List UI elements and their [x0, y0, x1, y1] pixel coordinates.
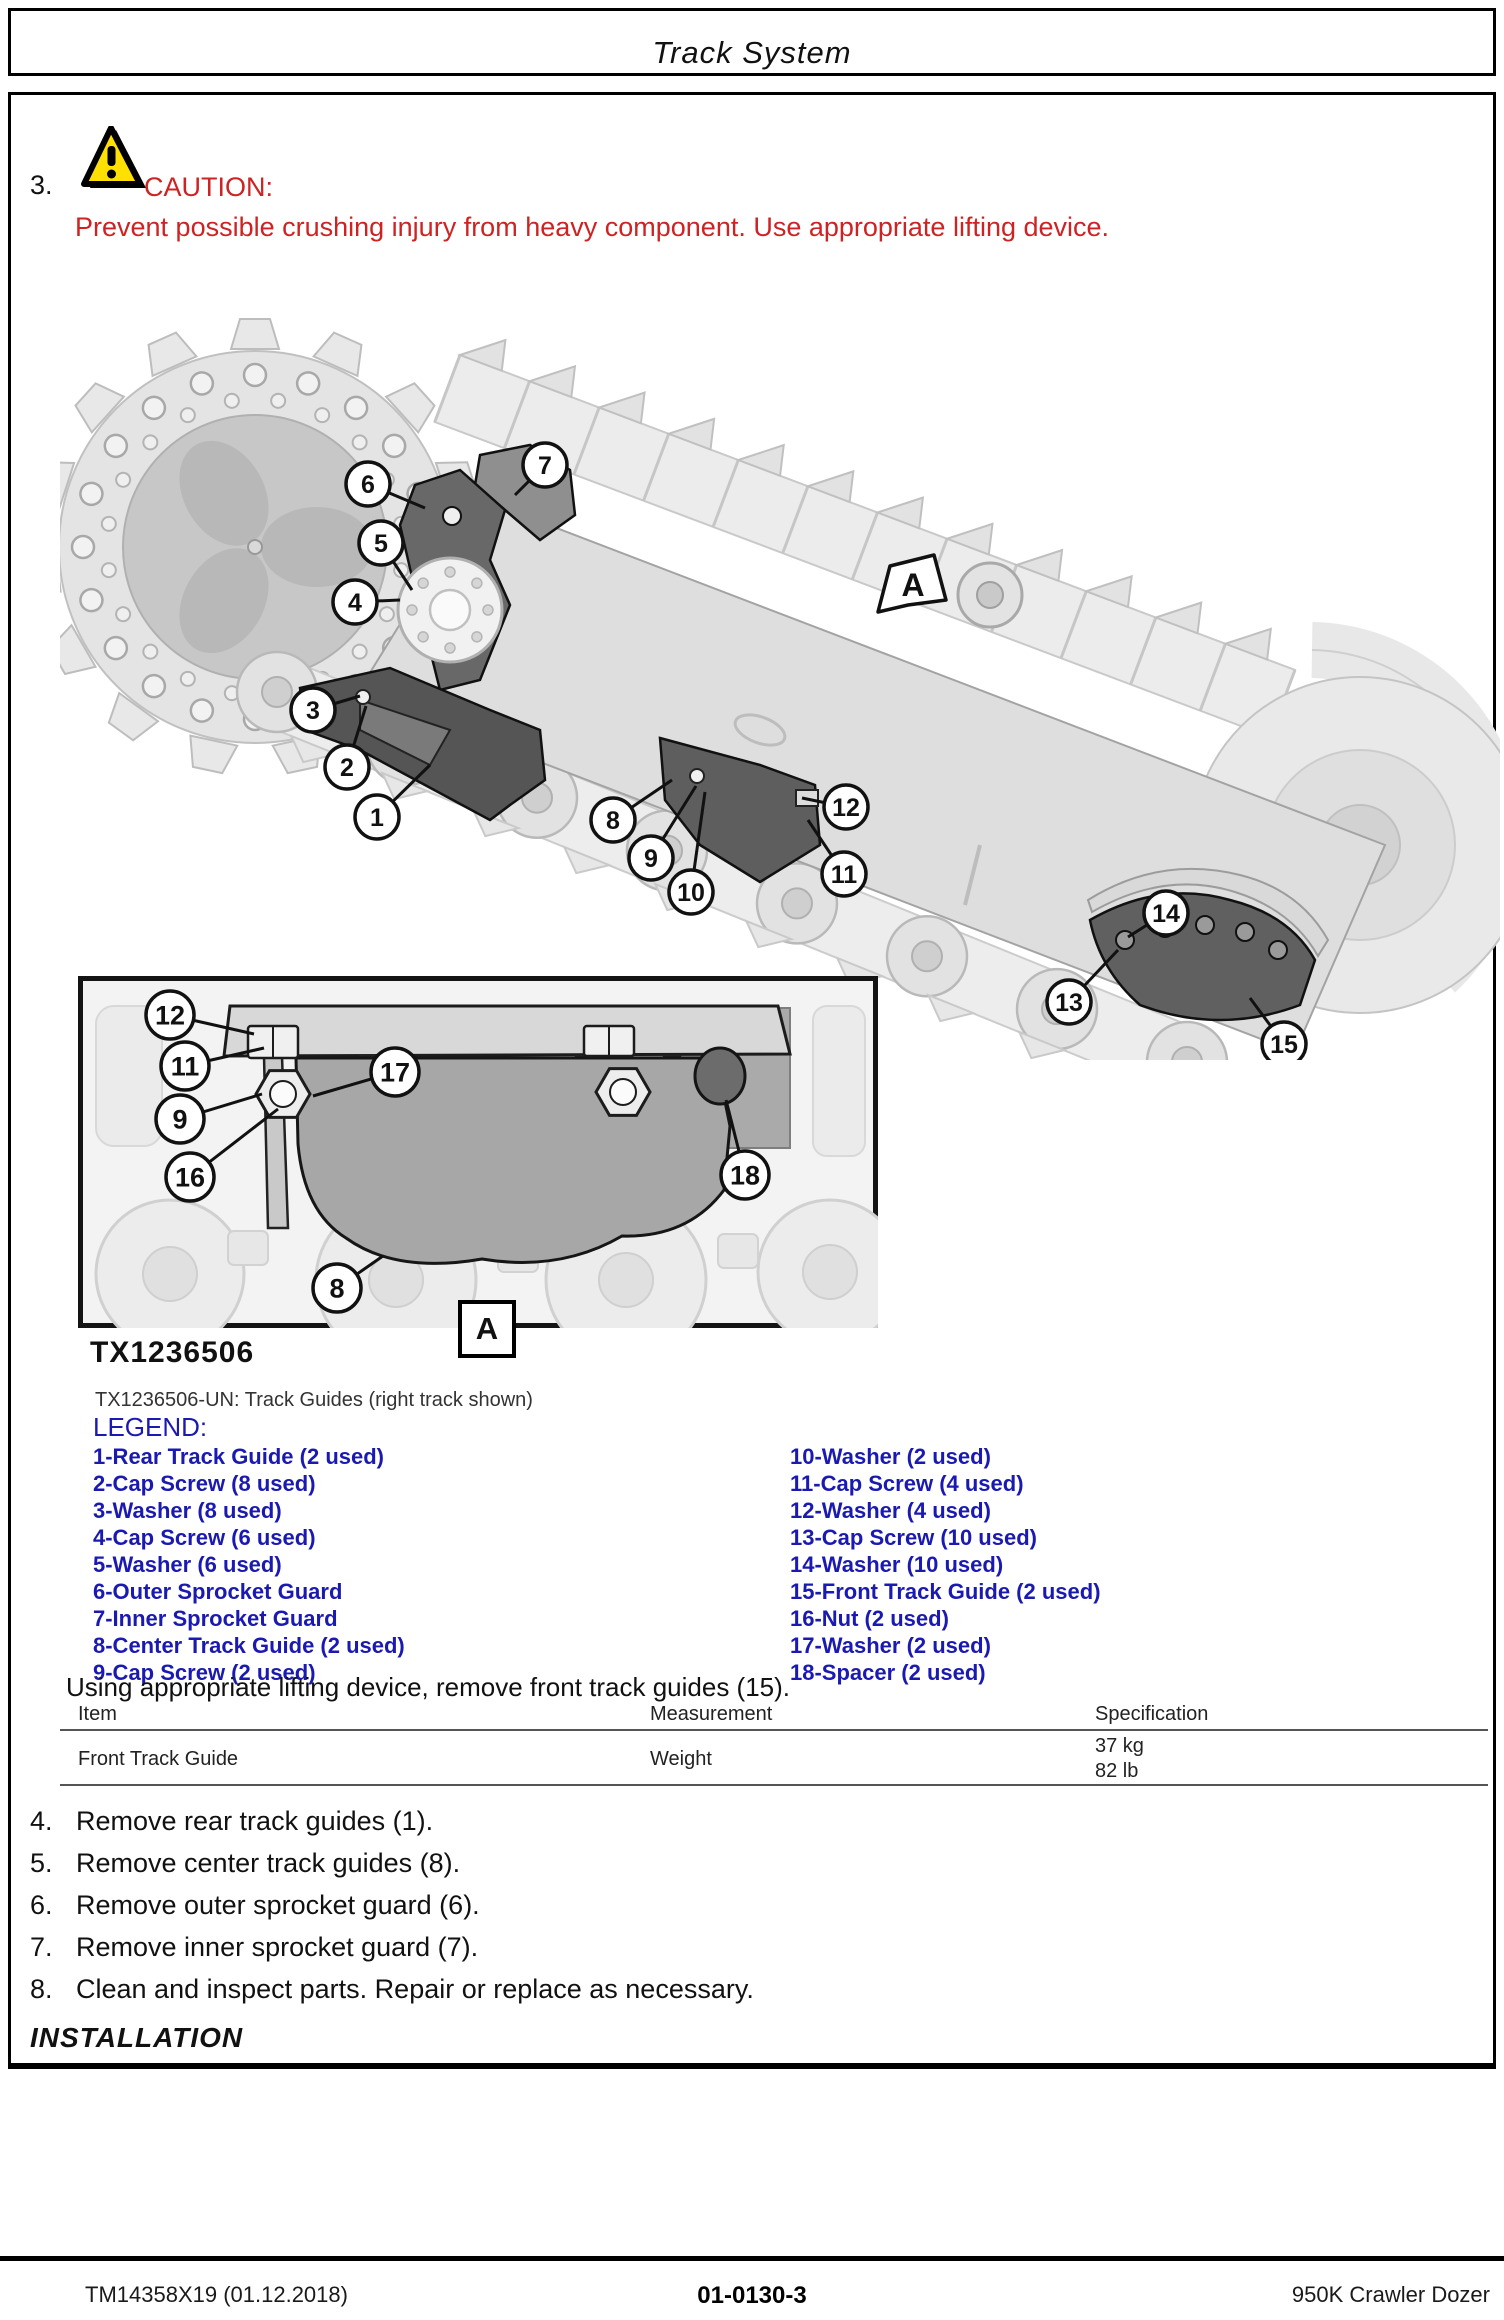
step-number: 4. [30, 1806, 76, 1836]
legend-item: 10-Washer (2 used) [790, 1443, 1430, 1470]
svg-text:2: 2 [340, 754, 354, 782]
step-text: Remove center track guides (8). [76, 1848, 460, 1878]
final-drive-hub [398, 558, 502, 662]
legend-item: 2-Cap Screw (8 used) [93, 1470, 733, 1497]
legend-item: 13-Cap Screw (10 used) [790, 1524, 1430, 1551]
svg-text:9: 9 [644, 845, 658, 873]
warning-triangle-icon [80, 126, 146, 192]
guard-bolt [443, 507, 461, 525]
svg-text:18: 18 [730, 1160, 760, 1190]
legend-item: 7-Inner Sprocket Guard [93, 1605, 733, 1632]
svg-text:16: 16 [175, 1162, 205, 1192]
manual-page: Track System 3. CAUTION: Prevent possibl… [0, 0, 1504, 2320]
spec-table-rule-top [60, 1729, 1488, 1731]
track-guide-inset-diagram: 121117916188 [78, 976, 878, 1328]
step-row: 7.Remove inner sprocket guard (7). [30, 1932, 1130, 1962]
svg-text:7: 7 [538, 452, 552, 480]
step-text: Remove inner sprocket guard (7). [76, 1932, 478, 1962]
svg-text:11: 11 [831, 861, 858, 889]
step-text: Remove outer sprocket guard (6). [76, 1890, 480, 1920]
spec-table-spec-metric: 37 kg [1095, 1735, 1144, 1758]
legend-item: 17-Washer (2 used) [790, 1632, 1430, 1659]
procedure-steps: 4.Remove rear track guides (1).5.Remove … [30, 1806, 1130, 2016]
step-number: 7. [30, 1932, 76, 1962]
legend-item: 12-Washer (4 used) [790, 1497, 1430, 1524]
svg-text:15: 15 [1270, 1031, 1298, 1059]
step-row: 5.Remove center track guides (8). [30, 1848, 1130, 1878]
step-row: 6.Remove outer sprocket guard (6). [30, 1890, 1130, 1920]
svg-text:12: 12 [155, 1000, 185, 1030]
step-row: 8.Clean and inspect parts. Repair or rep… [30, 1974, 1130, 2004]
track-system-diagram: A 675432189101211141315 [60, 260, 1500, 1060]
step-number: 8. [30, 1974, 76, 2004]
footer-model-name: 950K Crawler Dozer [1292, 2282, 1490, 2308]
inset-frame-rail [224, 1006, 790, 1056]
legend-heading: LEGEND: [93, 1412, 207, 1443]
svg-text:3: 3 [306, 697, 320, 725]
caution-label: CAUTION: [144, 172, 273, 203]
svg-text:8: 8 [606, 807, 620, 835]
svg-text:1: 1 [370, 804, 384, 832]
carrier-roller-hub [977, 582, 1003, 608]
footer-page-number: 01-0130-3 [0, 2282, 1504, 2310]
svg-text:5: 5 [374, 530, 388, 558]
legend-item: 8-Center Track Guide (2 used) [93, 1632, 733, 1659]
spacer [695, 1048, 745, 1104]
spec-table-measurement: Weight [650, 1748, 712, 1771]
legend-item: 18-Spacer (2 used) [790, 1659, 1430, 1686]
page-header: Track System [8, 8, 1496, 76]
svg-text:17: 17 [380, 1057, 410, 1087]
legend-item: 15-Front Track Guide (2 used) [790, 1578, 1430, 1605]
caution-text: Prevent possible crushing injury from he… [75, 212, 1109, 243]
spec-table-header-measurement: Measurement [650, 1703, 772, 1726]
svg-text:12: 12 [832, 794, 860, 822]
footer-rule [0, 2256, 1504, 2261]
svg-text:14: 14 [1152, 900, 1180, 928]
spec-table-header-item: Item [78, 1703, 117, 1726]
legend-item: 1-Rear Track Guide (2 used) [93, 1443, 733, 1470]
caution-step-number: 3. [30, 170, 53, 201]
step-text: Remove rear track guides (1). [76, 1806, 433, 1836]
figure-caption: TX1236506-UN: Track Guides (right track … [95, 1389, 533, 1412]
legend-item: 5-Washer (6 used) [93, 1551, 733, 1578]
legend-item: 3-Washer (8 used) [93, 1497, 733, 1524]
legend-column-right: 10-Washer (2 used)11-Cap Screw (4 used)1… [790, 1443, 1430, 1686]
spec-table-header-specification: Specification [1095, 1703, 1208, 1726]
svg-text:8: 8 [329, 1273, 344, 1303]
step-number: 6. [30, 1890, 76, 1920]
legend-item: 11-Cap Screw (4 used) [790, 1470, 1430, 1497]
svg-text:11: 11 [171, 1051, 200, 1081]
svg-text:13: 13 [1055, 989, 1083, 1017]
spec-table-item: Front Track Guide [78, 1748, 238, 1771]
instruction-text: Using appropriate lifting device, remove… [66, 1672, 790, 1703]
step-row: 4.Remove rear track guides (1). [30, 1806, 1130, 1836]
page-title: Track System [652, 35, 851, 73]
center-guide-screw [690, 769, 704, 783]
figure-id-label: TX1236506 [90, 1336, 254, 1370]
legend-item: 14-Washer (10 used) [790, 1551, 1430, 1578]
legend-item: 16-Nut (2 used) [790, 1605, 1430, 1632]
view-a-box: A [458, 1300, 516, 1358]
installation-heading: INSTALLATION [30, 2022, 243, 2054]
legend-item: 4-Cap Screw (6 used) [93, 1524, 733, 1551]
view-a-box-letter: A [476, 1311, 498, 1347]
svg-text:10: 10 [677, 879, 705, 907]
center-track-guide-inset [296, 1058, 730, 1263]
step-text: Clean and inspect parts. Repair or repla… [76, 1974, 754, 2004]
svg-text:6: 6 [361, 471, 375, 499]
view-a-letter: A [901, 567, 924, 603]
svg-text:9: 9 [172, 1104, 187, 1134]
spec-table-spec-imperial: 82 lb [1095, 1760, 1138, 1783]
legend-item: 6-Outer Sprocket Guard [93, 1578, 733, 1605]
svg-text:4: 4 [348, 589, 362, 617]
legend-column-left: 1-Rear Track Guide (2 used)2-Cap Screw (… [93, 1443, 733, 1686]
step-number: 5. [30, 1848, 76, 1878]
spec-table-rule-bottom [60, 1784, 1488, 1786]
